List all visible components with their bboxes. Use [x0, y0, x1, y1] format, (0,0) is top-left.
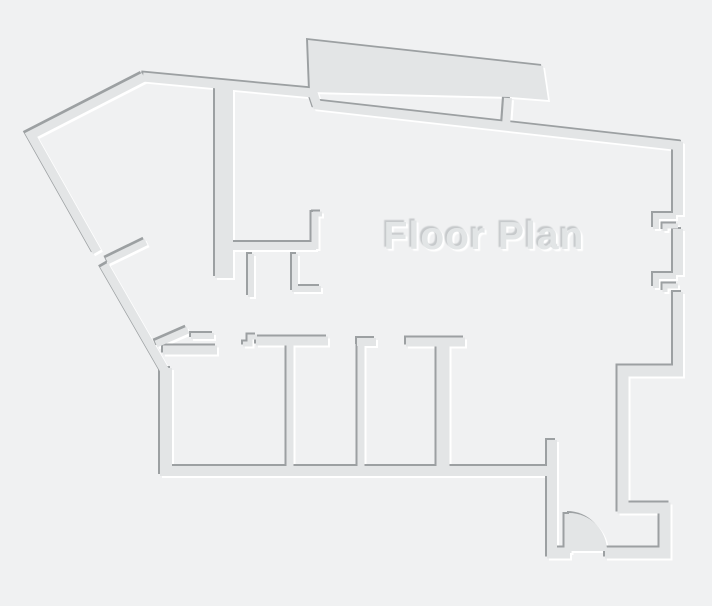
- floorplan-page: Floor Plan: [0, 0, 712, 606]
- floorplan-title: Floor Plan: [384, 215, 585, 258]
- floorplan-canvas: Floor Plan: [0, 0, 712, 606]
- terrace-side-wall: [506, 98, 508, 126]
